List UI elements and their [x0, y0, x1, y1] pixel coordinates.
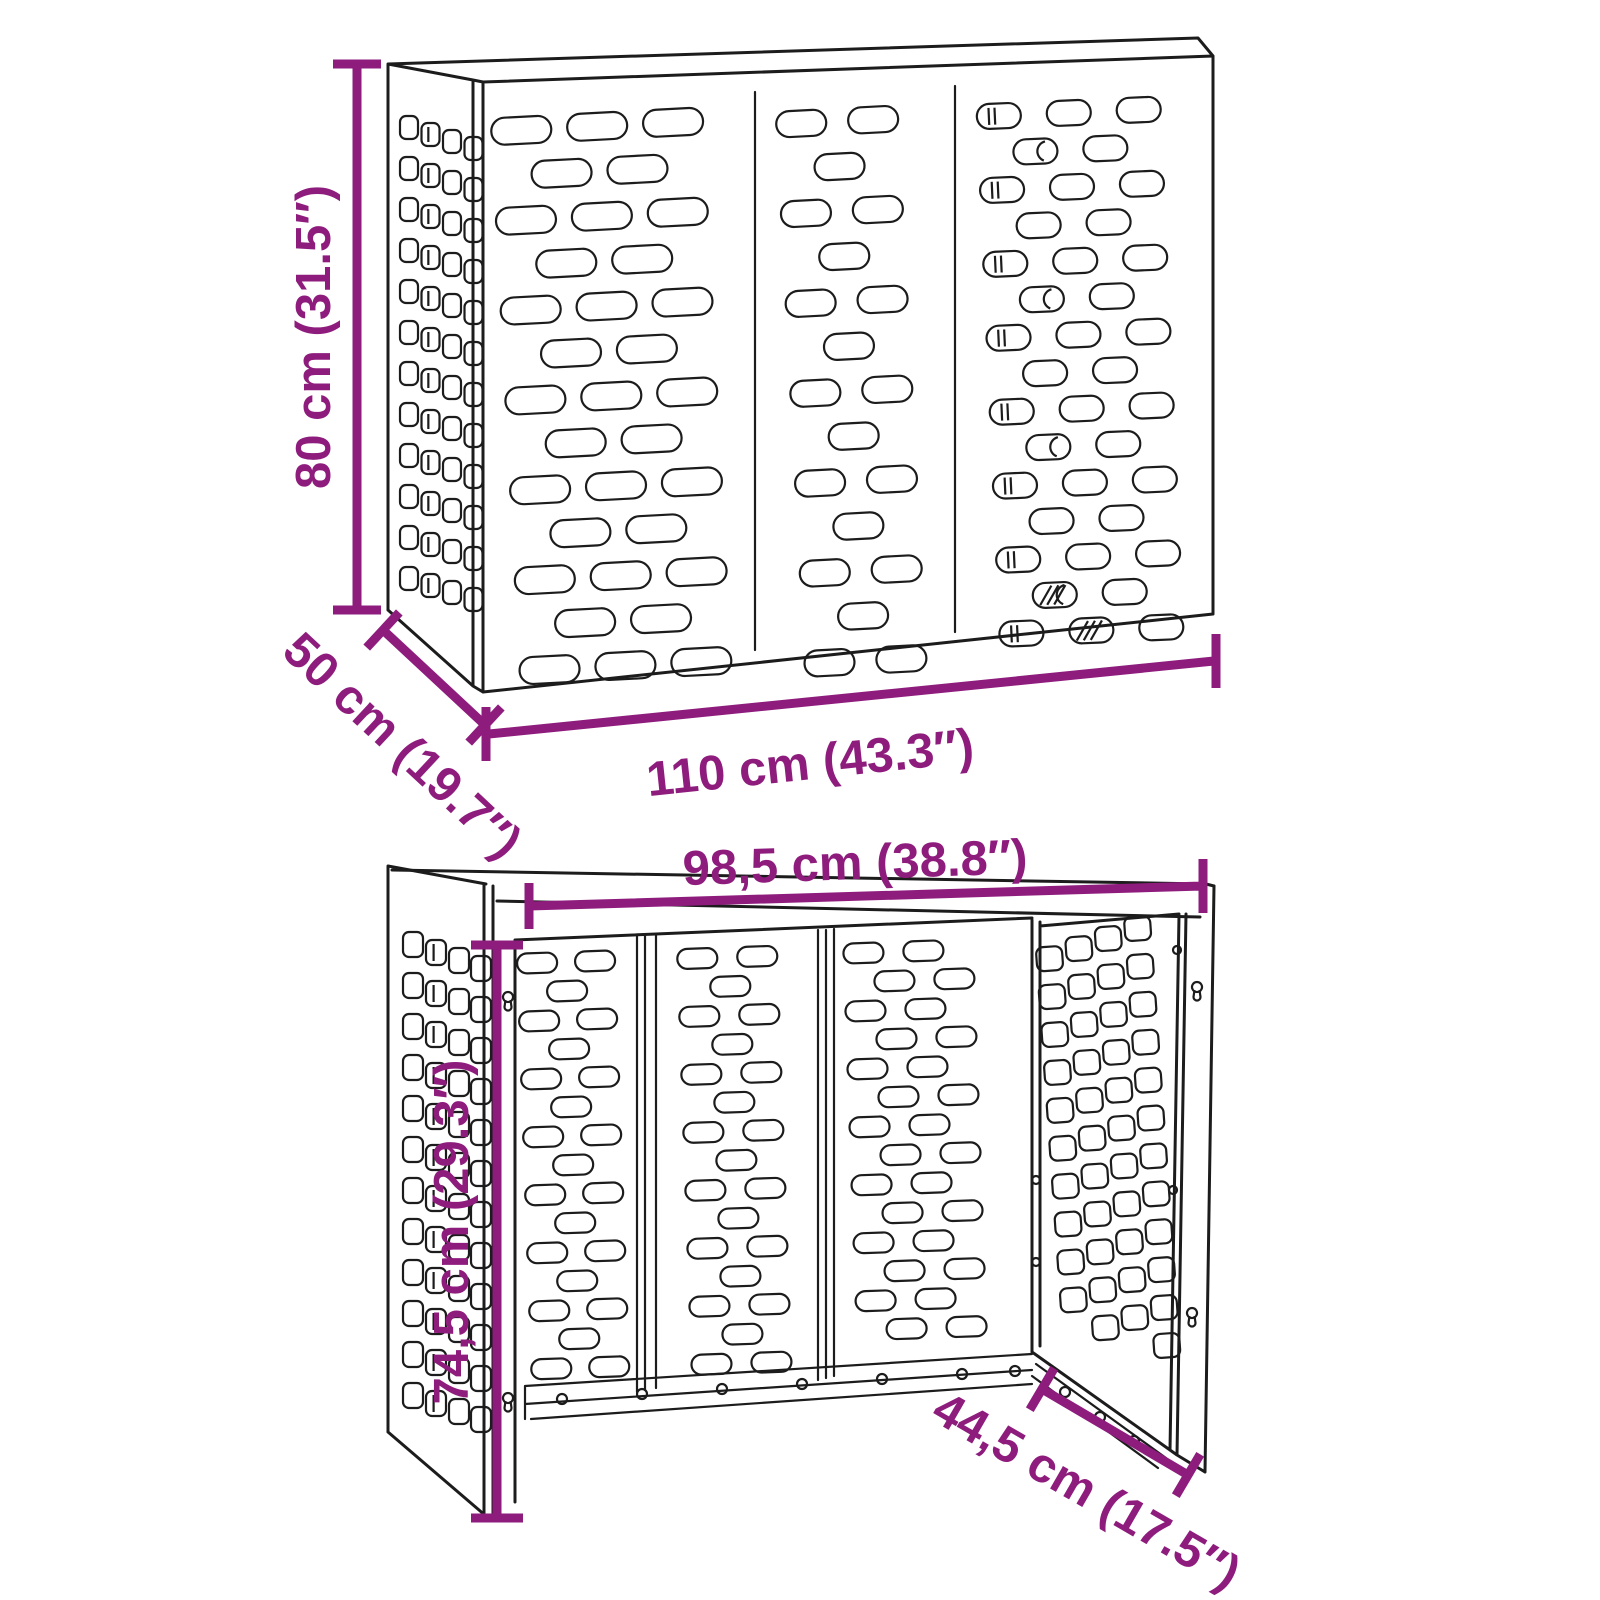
front-middle-slot-pattern — [776, 105, 927, 677]
dimension-label-inner-height: 74,5 cm (29.3″) — [425, 1060, 479, 1405]
back-left-slot-pattern — [517, 950, 630, 1379]
back-middle-slot-pattern — [677, 946, 792, 1375]
side-panel-perforation — [400, 116, 483, 611]
dimension-label-width: 110 cm (43.3″) — [644, 719, 976, 807]
dimension-label-depth: 50 cm (19.7″) — [273, 622, 532, 869]
back-right-slot-pattern — [843, 939, 987, 1340]
dimension-inner-depth-annotation: 44,5 cm (17.5″) — [924, 1368, 1250, 1600]
product-dimension-diagram: 80 cm (31.5″) 50 cm (19.7″) 110 cm (43.3… — [0, 0, 1600, 1600]
inner-frame-view: 98,5 cm (38.8″) 74,5 cm (29.3″) 44,5 cm … — [388, 830, 1249, 1600]
dimension-depth-annotation: 50 cm (19.7″) — [273, 612, 532, 869]
assembled-view: 80 cm (31.5″) 50 cm (19.7″) 110 cm (43.3… — [273, 38, 1216, 869]
frame-top-band — [392, 870, 1214, 1502]
front-panel-dividers — [755, 86, 955, 650]
back-panel-dividers — [637, 929, 834, 1392]
right-panel-perforation — [1034, 916, 1181, 1365]
dimension-width-annotation: 110 cm (43.3″) — [486, 634, 1216, 807]
front-right-slot-pattern — [976, 96, 1184, 647]
dimension-label-inner-width: 98,5 cm (38.8″) — [682, 830, 1029, 896]
diagram-canvas: 80 cm (31.5″) 50 cm (19.7″) 110 cm (43.3… — [0, 0, 1600, 1600]
dimension-label-height: 80 cm (31.5″) — [287, 185, 341, 489]
front-left-slot-pattern — [491, 107, 732, 684]
dimension-height-annotation: 80 cm (31.5″) — [287, 64, 381, 610]
